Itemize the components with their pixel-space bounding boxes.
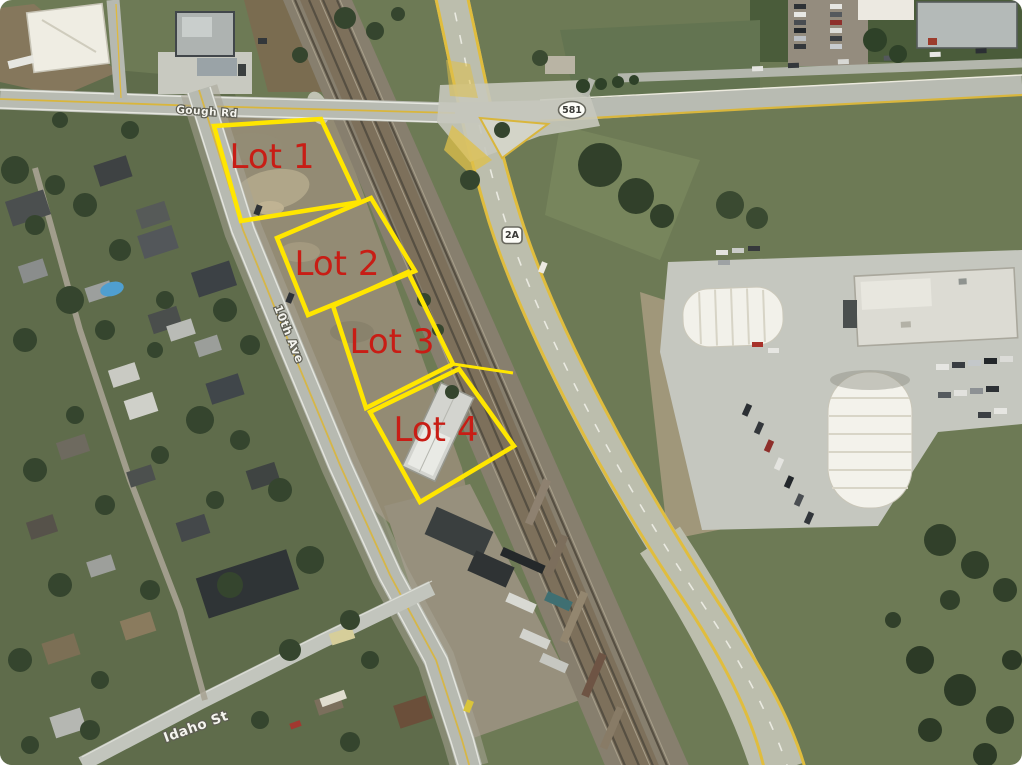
lot-label-lot-2: Lot 2 [295,244,380,284]
lot-label-lot-4: Lot 4 [394,410,479,450]
lot-label-lot-1: Lot 1 [230,137,315,177]
screenshot: Gough Rd 10th Ave Idaho St 581 2A Lot 1L… [0,0,1022,768]
shield-581: 581 [559,102,586,119]
lot-label-lot-3: Lot 3 [350,322,435,362]
aerial-map: Gough Rd 10th Ave Idaho St 581 2A Lot 1L… [0,0,1022,765]
svg-text:581: 581 [562,105,582,116]
svg-text:2A: 2A [505,230,520,241]
shield-2a: 2A [502,227,522,244]
aerial-photo-frame: Gough Rd 10th Ave Idaho St 581 2A Lot 1L… [0,0,1022,765]
